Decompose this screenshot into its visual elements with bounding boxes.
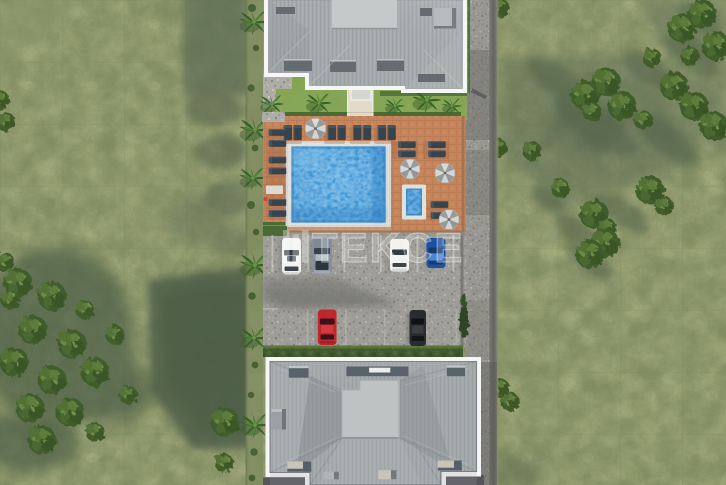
svg-text:TEKCE: TEKCE [312, 224, 464, 271]
